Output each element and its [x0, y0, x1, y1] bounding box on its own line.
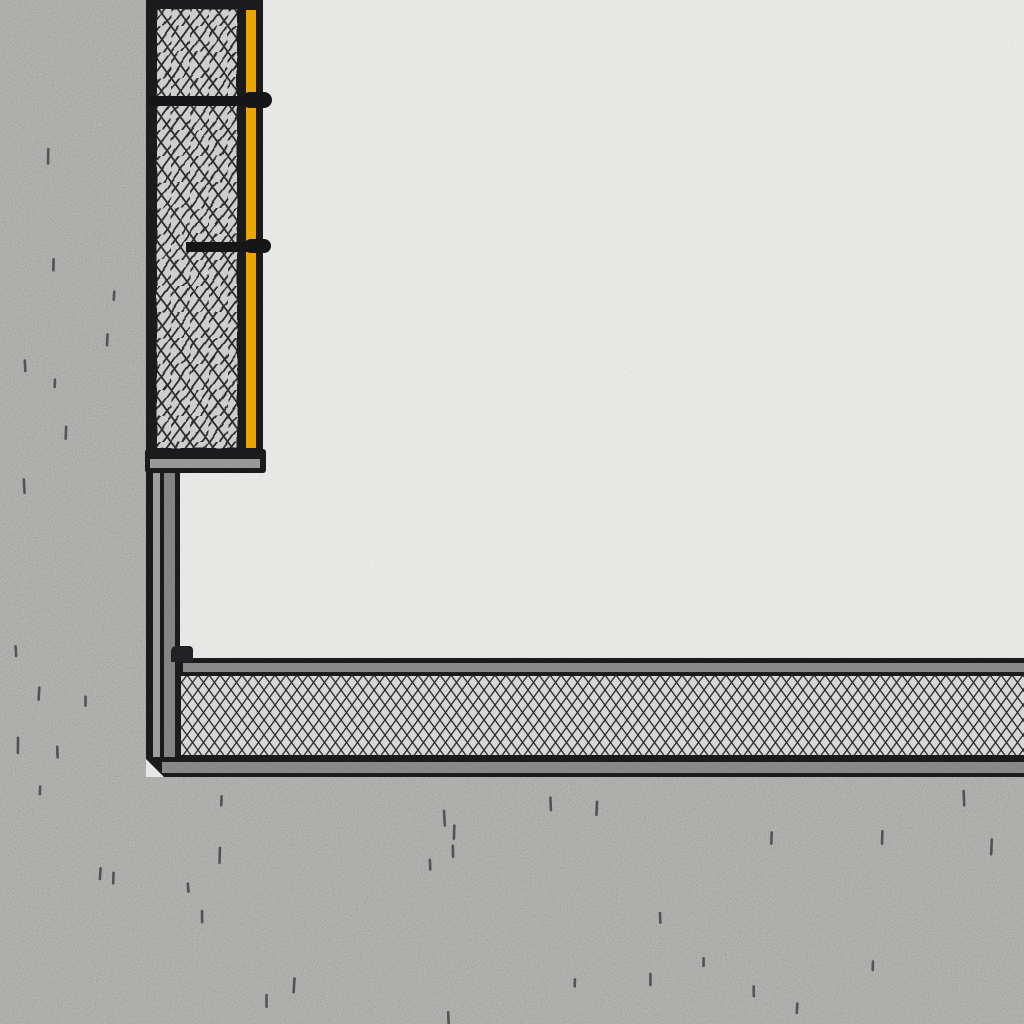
drawing-canvas — [0, 0, 1024, 1024]
section-detail-drawing — [0, 0, 1024, 1024]
